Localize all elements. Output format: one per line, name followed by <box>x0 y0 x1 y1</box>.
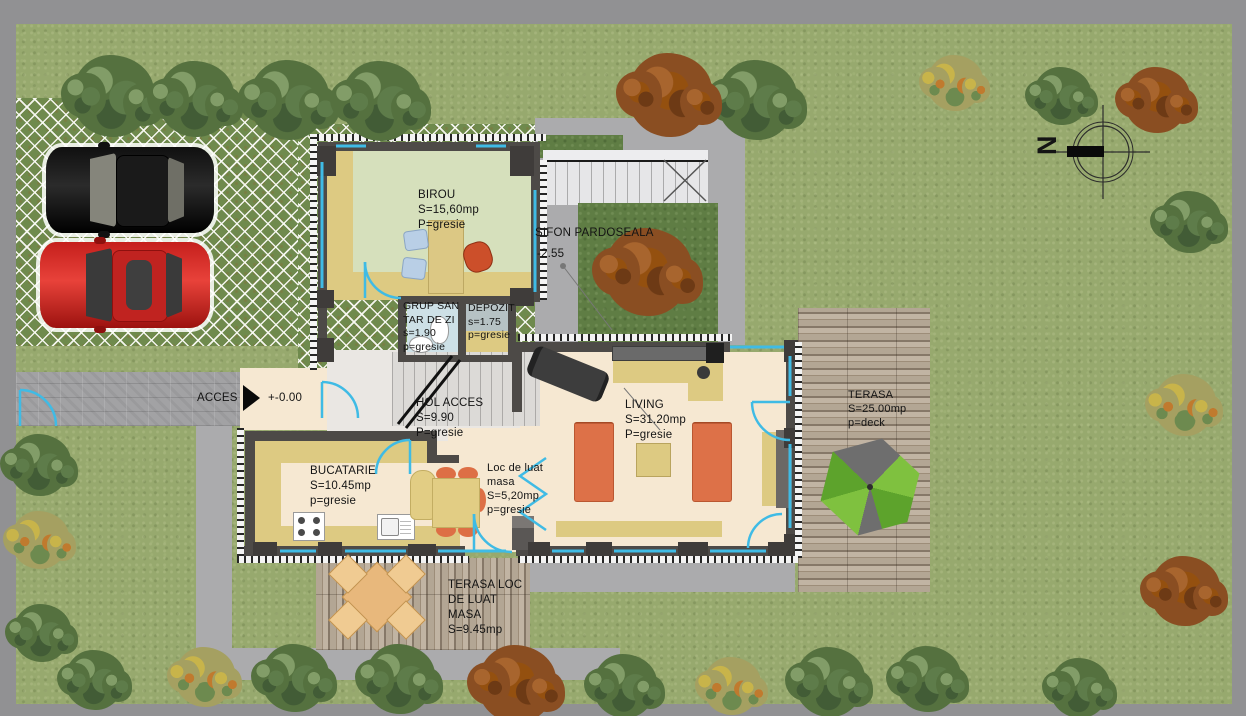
bush-icon <box>9 434 71 496</box>
bush-icon <box>261 644 329 712</box>
brown-tree-icon <box>604 228 692 316</box>
exterior-stair-diagonals <box>664 160 706 201</box>
bush-icon <box>895 646 961 712</box>
sifon-label: SIFON PARDOSEALA <box>535 226 654 241</box>
sifon-level-label: -2.55 <box>537 247 564 262</box>
room-label-living: LIVINGS=31.20mpP=gresie <box>625 398 686 443</box>
brown-tree-icon <box>1124 67 1190 133</box>
bush-icon <box>13 604 71 662</box>
bush-icon <box>365 644 435 714</box>
room-label-hol: HOL ACCESS=9.90P=gresie <box>416 396 483 441</box>
room-label-bucatarie: BUCATARIES=10.45mpp=gresie <box>310 464 376 509</box>
bush-icon <box>795 647 865 716</box>
access-label: ACCES <box>197 391 238 406</box>
bush-icon <box>1154 374 1216 436</box>
access-arrow-icon <box>243 385 260 411</box>
room-label-terasa-dining: TERASA LOCDE LUAT MASAS=9.45mp <box>448 578 522 638</box>
room-label-grup-sanitar: GRUP SANTAR DE ZI s=1.90p=gresie <box>403 300 459 354</box>
bush-icon <box>11 511 69 569</box>
tree-icon <box>341 61 421 141</box>
level-label: +-0.00 <box>268 391 302 406</box>
bush-icon <box>1050 658 1110 716</box>
brown-tree-icon <box>478 645 556 716</box>
bush-icon <box>593 654 657 716</box>
brown-tree-icon <box>1150 556 1220 626</box>
site-plan: BIROUS=15,60mpP=gresie SIFON PARDOSEALA … <box>0 0 1246 716</box>
bush-icon <box>175 647 235 707</box>
tree-icon <box>72 55 154 137</box>
bush-icon <box>1033 67 1091 125</box>
brown-tree-icon <box>628 53 712 137</box>
room-label-dining: Loc de luatmasa S=5,20mpp=gresie <box>487 461 543 517</box>
room-label-birou: BIROUS=15,60mpP=gresie <box>418 188 479 233</box>
tree-icon <box>249 60 329 140</box>
tree-icon <box>717 60 797 140</box>
bush-icon <box>927 55 983 111</box>
tree-icon <box>158 61 234 137</box>
room-label-terasa: TERASAS=25.00mpp=deck <box>848 388 906 430</box>
bush-icon <box>65 650 125 710</box>
room-label-depozit: DEPOZITs=1.75p=gresie <box>468 302 515 343</box>
compass-north-label: N <box>1038 136 1053 156</box>
bush-icon <box>1159 191 1221 253</box>
bush-icon <box>703 657 761 715</box>
